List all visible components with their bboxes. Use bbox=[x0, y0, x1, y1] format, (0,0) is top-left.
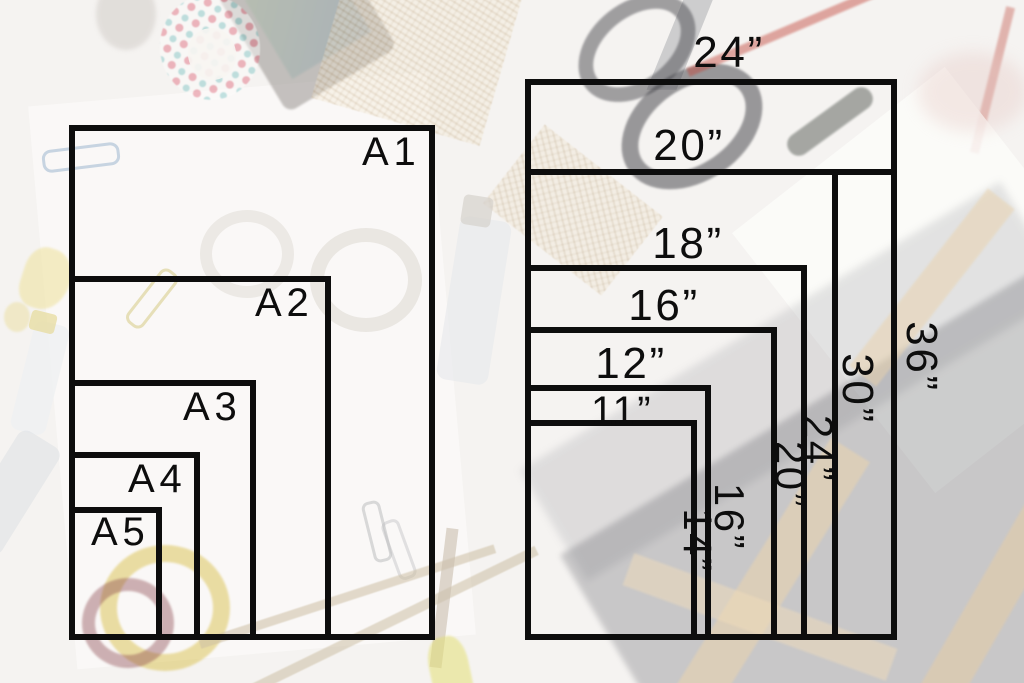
20x30-top-line-extension bbox=[832, 169, 897, 175]
width-11-label: 11” bbox=[591, 391, 653, 431]
glue-bottle-cap-shape bbox=[460, 194, 494, 228]
11x14-size-rectangle bbox=[525, 420, 697, 640]
width-18-label: 18” bbox=[652, 222, 724, 266]
width-16-label: 16” bbox=[628, 284, 700, 328]
height-20-label: 20” bbox=[769, 441, 811, 509]
height-36-label: 36” bbox=[899, 321, 943, 393]
blurred-object-shape bbox=[96, 0, 156, 50]
phone-shape bbox=[217, 0, 398, 113]
washi-tape-hole-shape bbox=[182, 23, 242, 86]
height-14-label: 14” bbox=[677, 508, 717, 573]
paint-splotch-shape bbox=[4, 302, 30, 332]
paper-size-comparison-diagram: A1 A2 A3 A4 A5 24” 20” 18” 16” 12” 11” 3… bbox=[0, 0, 1024, 683]
width-20-label: 20” bbox=[653, 124, 725, 168]
washi-tape-roll-shape bbox=[148, 0, 272, 111]
width-12-label: 12” bbox=[595, 342, 667, 386]
a1-size-label: A1 bbox=[362, 132, 421, 172]
a5-size-label: A5 bbox=[91, 512, 150, 552]
yellow-brush-handle-shape bbox=[423, 633, 477, 683]
phone-screen-shape bbox=[245, 0, 371, 79]
paint-tube-cap-shape bbox=[28, 309, 58, 335]
paint-tube-shape bbox=[0, 427, 63, 558]
glue-bottle-shape bbox=[435, 215, 512, 386]
paint-tube-shape bbox=[9, 319, 71, 436]
red-pencil-shape bbox=[970, 6, 1015, 154]
a4-size-label: A4 bbox=[128, 459, 187, 499]
width-24-label: 24” bbox=[693, 31, 765, 75]
a2-size-label: A2 bbox=[255, 283, 314, 323]
pink-paint-smear-shape bbox=[918, 52, 1024, 132]
a3-size-label: A3 bbox=[183, 387, 242, 427]
easel-leg-shape bbox=[918, 430, 1024, 683]
